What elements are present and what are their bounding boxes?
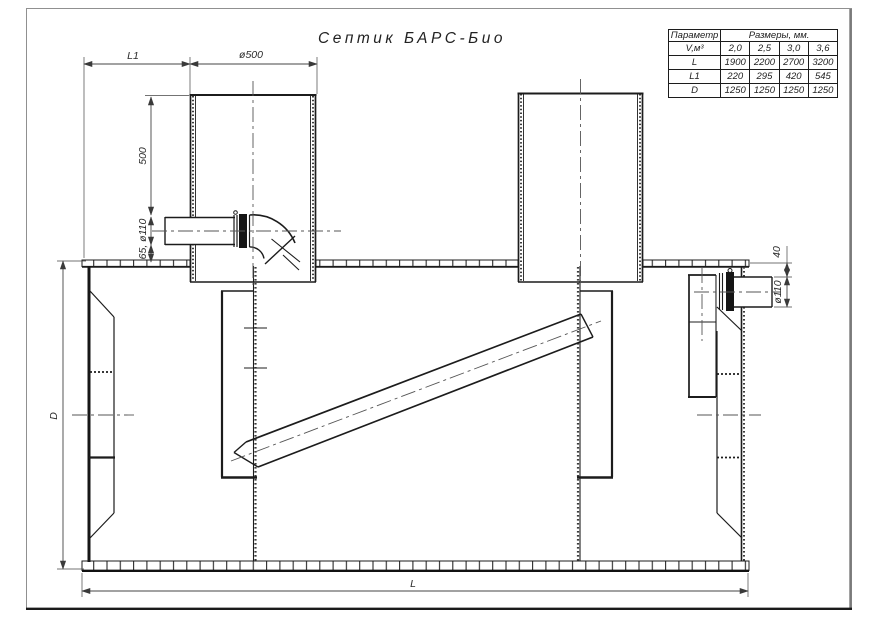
- tank-body: [82, 260, 749, 571]
- inlet-coupling: [234, 211, 250, 248]
- spec-cell: 420: [779, 70, 808, 84]
- dimensions: [57, 57, 792, 597]
- spec-row-name: V,м³: [669, 42, 721, 56]
- transfer-pipe: [234, 314, 593, 467]
- dim-label-inlet: 65, ø110: [137, 219, 149, 260]
- dim-label-l: L: [410, 578, 416, 590]
- inlet-elbow: [250, 215, 301, 270]
- drawing-title: Септик БАРС-Био: [318, 30, 506, 47]
- spec-cell: 1250: [808, 84, 837, 98]
- end-cap-left: [89, 291, 115, 538]
- centerlines: [72, 79, 781, 461]
- drawing-sheet: Септик БАРС-Био: [0, 0, 880, 622]
- spec-cell: 295: [750, 70, 779, 84]
- spec-cell: 2200: [750, 56, 779, 70]
- dim-label-dia500: ø500: [239, 49, 263, 61]
- spec-cell: 220: [721, 70, 750, 84]
- spec-row-name: L: [669, 56, 721, 70]
- tank-lid-segment: [643, 260, 749, 267]
- spec-cell: 1250: [750, 84, 779, 98]
- spec-cell: 1900: [721, 56, 750, 70]
- spec-cell: 2,5: [750, 42, 779, 56]
- spec-cell: 1250: [779, 84, 808, 98]
- dim-label-d: D: [48, 412, 60, 420]
- spec-cell: 3,0: [779, 42, 808, 56]
- spec-cell: 3,6: [808, 42, 837, 56]
- spec-cell: 1250: [721, 84, 750, 98]
- spec-header-sizes: Размеры, мм.: [721, 30, 838, 42]
- spec-table: Параметр Размеры, мм. V,м³ 2,0 2,5 3,0 3…: [668, 29, 838, 98]
- dim-label-l1: L1: [127, 50, 139, 62]
- outlet-assembly: [688, 269, 772, 398]
- internal-baffle-right: [577, 266, 613, 561]
- spec-row-name: L1: [669, 70, 721, 84]
- table-row: L1 220 295 420 545: [669, 70, 838, 84]
- table-row: V,м³ 2,0 2,5 3,0 3,6: [669, 42, 838, 56]
- spec-cell: 3200: [808, 56, 837, 70]
- tank-lid-segment: [82, 260, 190, 267]
- dim-label-500: 500: [137, 147, 149, 165]
- table-row: L 1900 2200 2700 3200: [669, 56, 838, 70]
- spec-cell: 2,0: [721, 42, 750, 56]
- end-cap-right: [717, 307, 742, 538]
- tank-lid-segment: [316, 260, 518, 267]
- spec-cell: 545: [808, 70, 837, 84]
- tank-base: [82, 561, 749, 571]
- table-row: D 1250 1250 1250 1250: [669, 84, 838, 98]
- internal-baffle-left: [221, 266, 267, 561]
- spec-row-name: D: [669, 84, 721, 98]
- spec-header-param: Параметр: [669, 30, 721, 42]
- dim-label-40: 40: [771, 246, 783, 258]
- spec-cell: 2700: [779, 56, 808, 70]
- dim-label-dia110: ø110: [772, 280, 784, 303]
